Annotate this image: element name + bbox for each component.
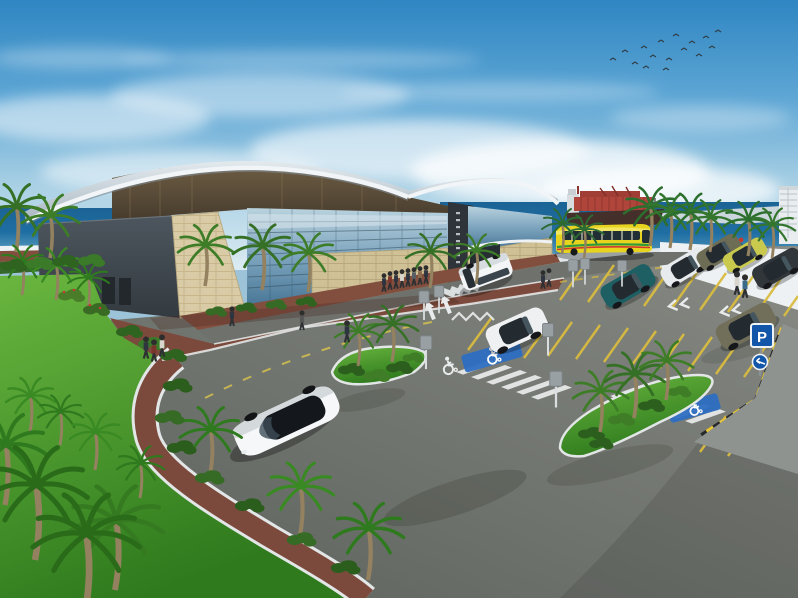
rendering-canvas: P bbox=[0, 0, 798, 598]
parking-sign-letter: P bbox=[757, 329, 767, 346]
service-door bbox=[119, 278, 131, 305]
service-door bbox=[102, 277, 115, 304]
scene-rendering: P bbox=[0, 0, 798, 598]
sign-tower-lettering bbox=[456, 212, 460, 270]
